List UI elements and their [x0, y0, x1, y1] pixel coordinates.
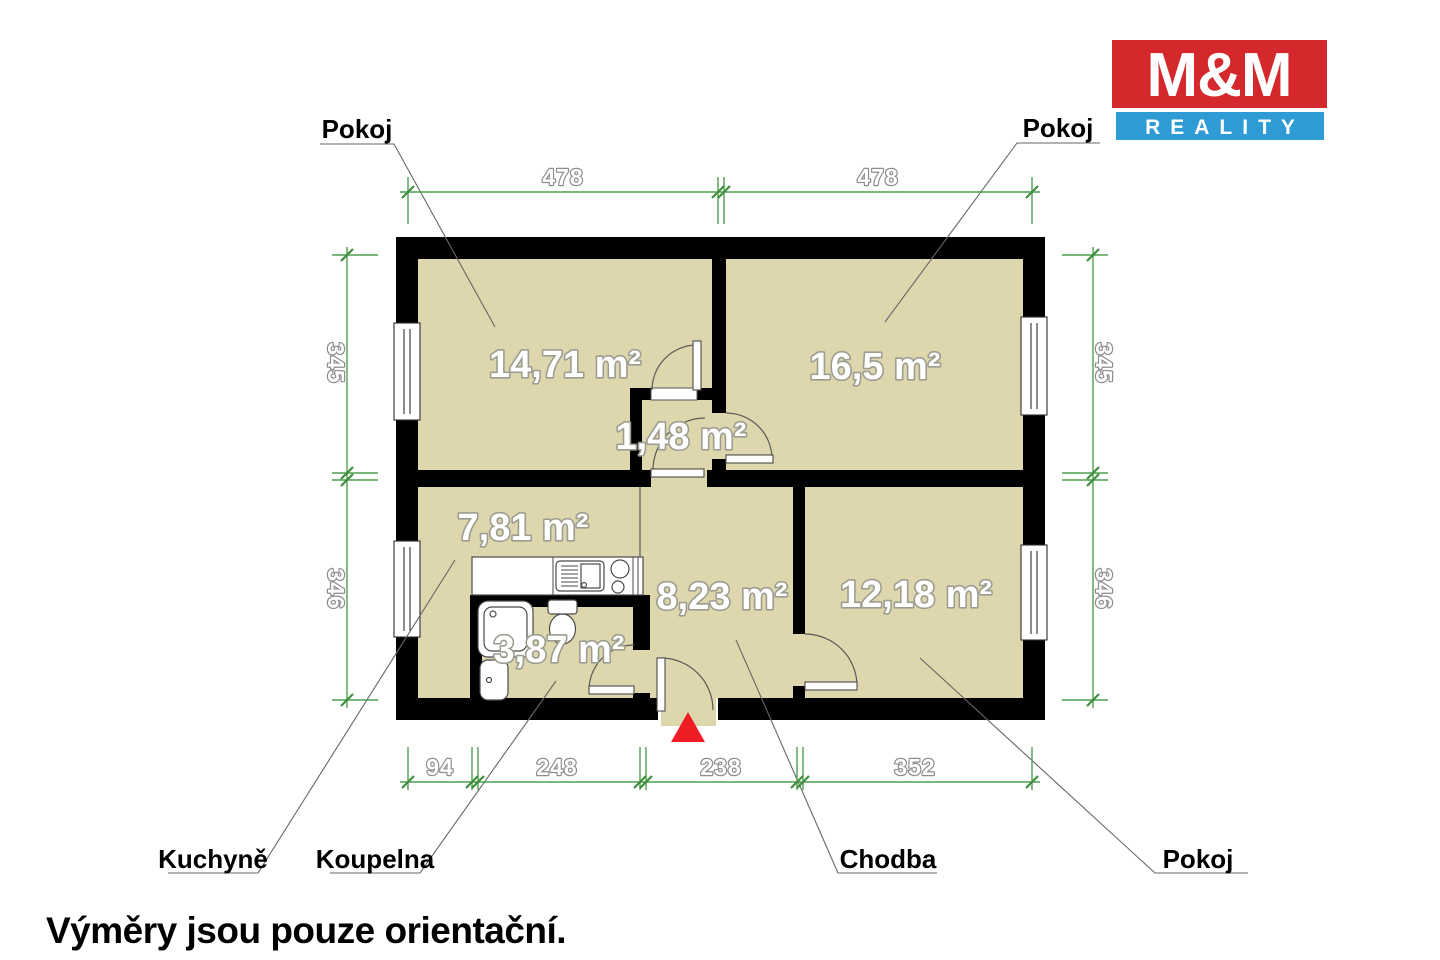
dim-bottom-3: 238	[700, 754, 741, 780]
area-room-top-left: 14,71 m²	[489, 344, 641, 386]
label-kitchen: Kuchyně	[158, 844, 268, 874]
door-threshold	[651, 388, 697, 400]
dim-bottom-1: 94	[426, 754, 454, 780]
dim-top-left: 478	[542, 164, 583, 190]
area-hallway: 8,23 m²	[657, 576, 788, 618]
mm-reality-logo: M&M REALITY	[1112, 40, 1327, 140]
sink-icon	[556, 561, 604, 591]
logo-subtitle: REALITY	[1145, 116, 1305, 139]
dim-right-top: 345	[1091, 342, 1117, 383]
dim-left-top: 345	[323, 342, 349, 383]
area-room-top-right: 16,5 m²	[810, 346, 941, 388]
area-bathroom: 3,87 m²	[494, 629, 625, 671]
label-bathroom: Koupelna	[316, 844, 435, 874]
floorplan-page: 478 478 94 248 238 352 345 346 345 346 1…	[0, 0, 1440, 960]
dim-bottom-4: 352	[894, 754, 935, 780]
window-icon	[1021, 317, 1047, 415]
window-icon	[1021, 545, 1047, 640]
label-room-bottom-right: Pokoj	[1163, 844, 1234, 874]
window-icon	[394, 323, 420, 420]
label-room-top-left: Pokoj	[322, 114, 393, 144]
logo-title: M&M	[1146, 41, 1291, 110]
floorplan-drawing: 478 478 94 248 238 352 345 346 345 346 1…	[0, 0, 1440, 960]
dim-bottom-2: 248	[536, 754, 577, 780]
kitchen-counter	[472, 557, 643, 595]
area-room-bottom-right: 12,18 m²	[840, 574, 992, 616]
dim-top-right: 478	[857, 164, 898, 190]
label-hallway: Chodba	[840, 844, 937, 874]
area-closet: 1,48 m²	[616, 416, 747, 458]
area-kitchen: 7,81 m²	[458, 507, 589, 549]
label-room-top-right: Pokoj	[1023, 113, 1094, 143]
disclaimer-text: Výměry jsou pouze orientační.	[46, 910, 566, 951]
dim-right-bottom: 346	[1091, 568, 1117, 609]
dim-left-bottom: 346	[323, 568, 349, 609]
